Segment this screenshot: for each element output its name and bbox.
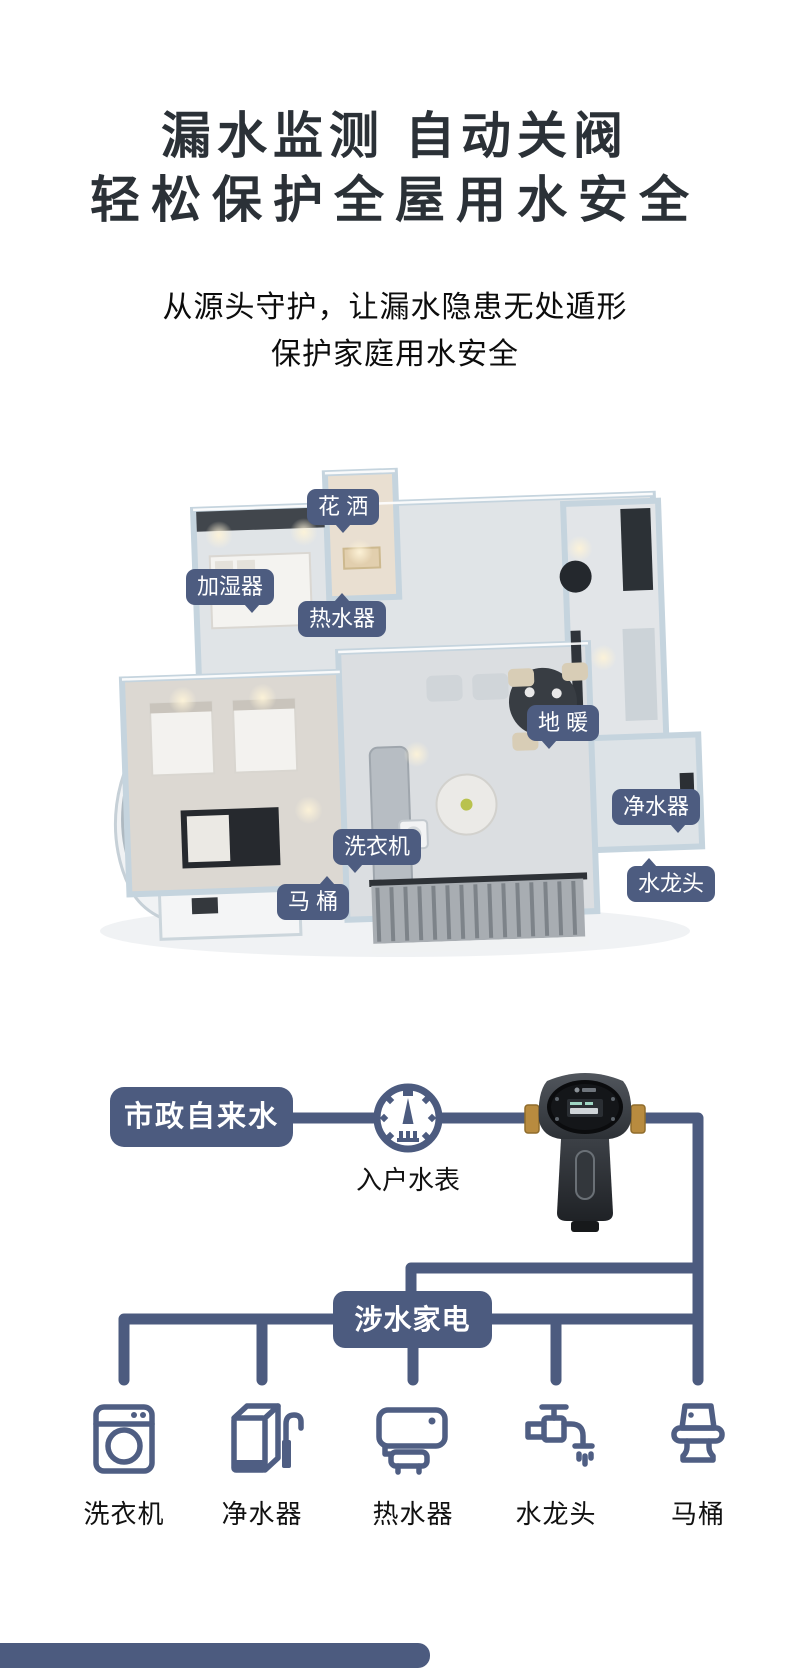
callout-water-heater-label: 热水器 — [309, 606, 375, 631]
callout-washing-machine-label: 洗衣机 — [344, 834, 410, 859]
page: 漏水监测 自动关阀 轻松保护全屋用水安全 从源头守护，让漏水隐患无处遁形 保护家… — [0, 0, 790, 1668]
meter-label: 入户水表 — [318, 1160, 498, 1197]
callout-toilet: 马 桶 — [277, 884, 349, 920]
callout-faucet-label: 水龙头 — [638, 871, 704, 896]
callout-shower-label: 花 洒 — [318, 494, 368, 519]
hub-box: 涉水家电 — [333, 1291, 492, 1348]
washing-machine-icon — [82, 1400, 166, 1478]
callout-floor-heating: 地 暖 — [527, 705, 599, 741]
appliance-toilet: 马桶 — [638, 1400, 758, 1531]
callout-washing-machine: 洗衣机 — [333, 829, 421, 865]
appliance-label: 净水器 — [202, 1494, 322, 1531]
appliance-label: 马桶 — [638, 1494, 758, 1531]
callout-water-purifier-label: 净水器 — [623, 794, 689, 819]
water-purifier-icon — [220, 1400, 304, 1478]
callout-water-purifier: 净水器 — [612, 789, 700, 825]
callout-water-heater: 热水器 — [298, 601, 386, 637]
smart-water-valve-photo — [523, 1063, 647, 1235]
callout-faucet: 水龙头 — [627, 866, 715, 902]
toilet-icon — [656, 1400, 740, 1478]
appliance-label: 水龙头 — [496, 1494, 616, 1531]
source-box-label: 市政自来水 — [124, 1101, 279, 1133]
callout-humidifier-label: 加湿器 — [197, 574, 263, 599]
appliance-label: 热水器 — [353, 1494, 473, 1531]
appliance-water-purifier: 净水器 — [202, 1400, 322, 1531]
bottom-section-divider — [0, 1643, 430, 1668]
appliance-faucet: 水龙头 — [496, 1400, 616, 1531]
callout-humidifier: 加湿器 — [186, 569, 274, 605]
faucet-icon — [514, 1400, 598, 1478]
water-heater-icon — [371, 1400, 455, 1478]
hub-box-label: 涉水家电 — [354, 1304, 470, 1335]
source-box: 市政自来水 — [110, 1087, 293, 1147]
callout-shower: 花 洒 — [307, 489, 379, 525]
water-meter-gauge-icon — [370, 1080, 446, 1156]
appliance-washing-machine: 洗衣机 — [64, 1400, 184, 1531]
callout-floor-heating-label: 地 暖 — [538, 710, 588, 735]
appliance-label: 洗衣机 — [64, 1494, 184, 1531]
callout-toilet-label: 马 桶 — [288, 889, 338, 914]
appliance-water-heater: 热水器 — [353, 1400, 473, 1531]
